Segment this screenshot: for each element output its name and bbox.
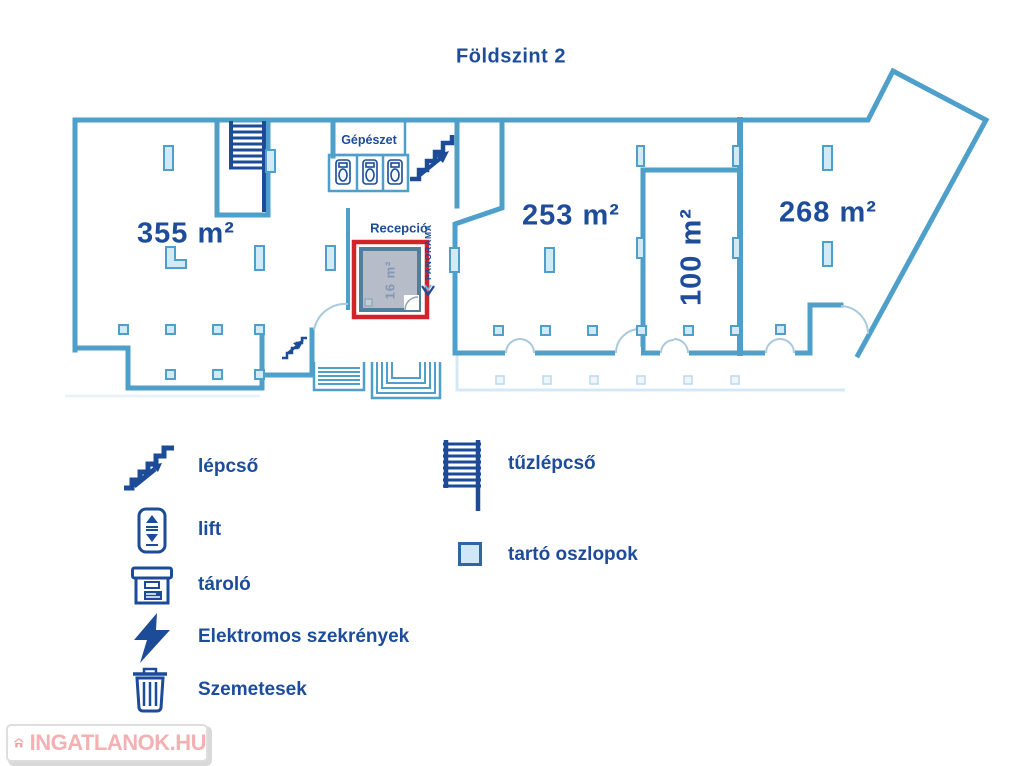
lift-icon bbox=[137, 507, 169, 555]
trash-icon bbox=[130, 667, 170, 713]
room-label-100: 100 m² bbox=[676, 208, 709, 306]
watermark-logo[interactable]: INGATLANOK.HU bbox=[6, 724, 208, 762]
toilet-icon bbox=[363, 160, 377, 184]
legend-label-trash: Szemetesek bbox=[198, 679, 307, 701]
panorama-chevron-icon bbox=[421, 284, 435, 297]
staircase-plan-icon bbox=[410, 135, 452, 179]
entrance-steps bbox=[314, 362, 440, 398]
support-columns bbox=[119, 146, 832, 379]
storage-icon bbox=[131, 566, 173, 606]
toilet-icon bbox=[336, 160, 350, 184]
stairs-icon bbox=[122, 442, 180, 492]
highlighted-room-size: 16 m² bbox=[383, 261, 398, 300]
watermark-text: INGATLANOK.HU bbox=[30, 730, 206, 756]
legend-label-columns: tartó oszlopok bbox=[508, 544, 638, 566]
house-icon bbox=[14, 729, 24, 757]
legend-label-electric: Elektromos szekrények bbox=[198, 626, 409, 648]
room-label-268: 268 m² bbox=[779, 197, 877, 230]
room-label-355: 355 m² bbox=[137, 218, 235, 251]
toilet-icon bbox=[388, 160, 402, 184]
terrace-columns bbox=[496, 376, 739, 384]
legend-label-lift: lift bbox=[198, 519, 221, 541]
legend-label-fire-stairs: tűzlépcső bbox=[508, 453, 596, 475]
room-label-253: 253 m² bbox=[522, 200, 620, 233]
ladder-icon bbox=[440, 438, 486, 514]
fire-ladder-plan-icon bbox=[229, 121, 266, 212]
legend-label-storage: tároló bbox=[198, 574, 251, 596]
legend-label-stairs: lépcső bbox=[198, 456, 258, 478]
staircase-small-icon bbox=[282, 338, 307, 358]
column-icon bbox=[457, 541, 484, 568]
mechanical-label: Gépészet bbox=[341, 133, 397, 147]
lightning-icon bbox=[130, 613, 176, 663]
toilet-icons bbox=[336, 160, 402, 184]
panorama-logo-text: PANORAMA bbox=[423, 224, 433, 280]
floorplan-page: Földszint 2 bbox=[0, 0, 1024, 766]
panorama-logo: PANORAMA bbox=[415, 223, 441, 297]
